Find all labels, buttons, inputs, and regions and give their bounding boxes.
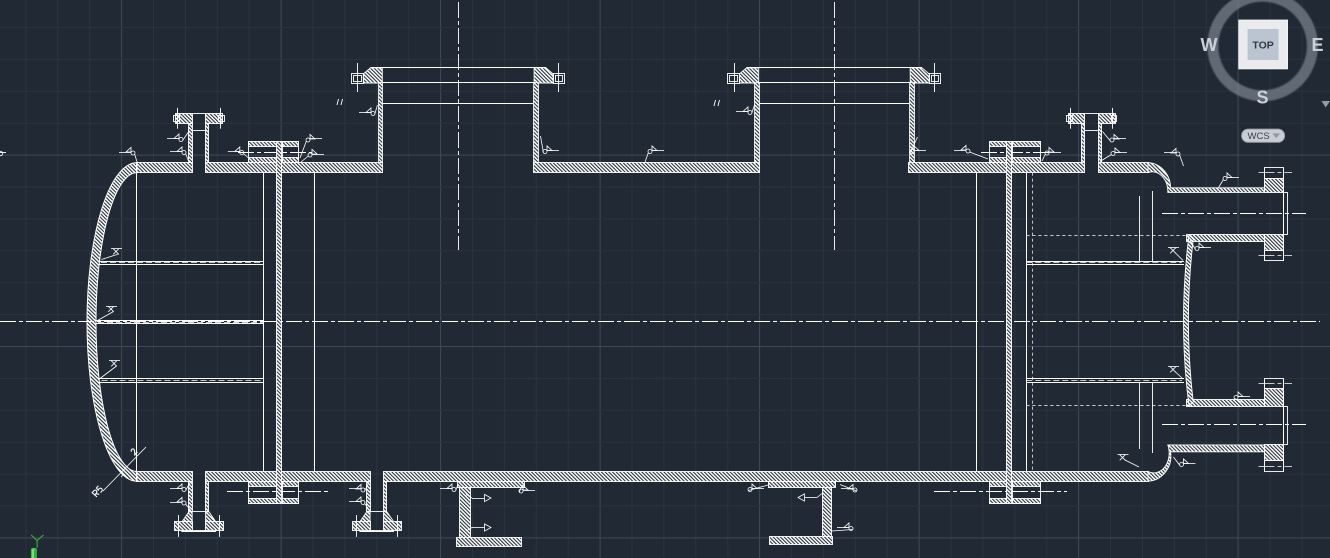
svg-text:W: W [1201,35,1218,55]
svg-text:TOP: TOP [1252,40,1273,52]
svg-text:S: S [1256,88,1268,108]
svg-text:WCS: WCS [1248,131,1270,142]
svg-text:E: E [1311,35,1323,55]
